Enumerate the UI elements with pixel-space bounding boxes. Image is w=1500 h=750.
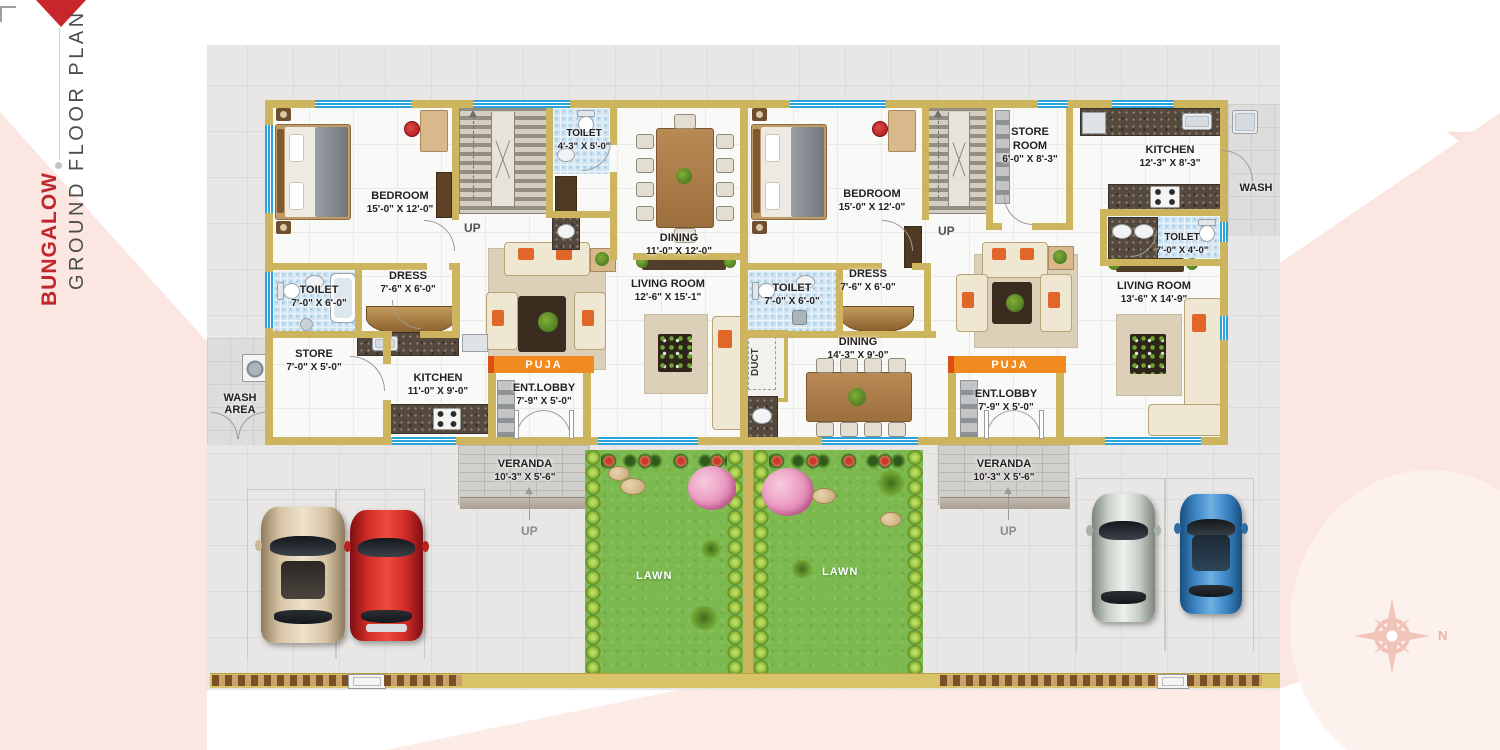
room-label-toilet-attached-a: TOILET 4'-3" X 5'-0": [545, 128, 623, 152]
stove: [1150, 186, 1180, 208]
room-dims: 7'-0" X 5'-0": [268, 362, 360, 375]
chair: [636, 134, 654, 149]
grass-tuft: [790, 560, 814, 578]
sofa-cushion: [992, 248, 1006, 260]
room-name: LIVING ROOM: [606, 278, 730, 292]
page-subtitle: GROUND FLOOR PLAN: [66, 34, 89, 290]
room-name: ENT.LOBBY: [492, 382, 596, 396]
puja-label: PUJA: [991, 359, 1028, 371]
car-rear-glass: [1101, 591, 1145, 604]
nightstand: [276, 108, 291, 121]
desk-chair: [404, 121, 420, 137]
room-name: BEDROOM: [330, 190, 470, 204]
room-dims: 15'-0" X 12'-0": [330, 204, 470, 217]
chair: [716, 134, 734, 149]
room-dims: 10'-3" X 5'-6": [465, 472, 585, 485]
car-windshield: [1099, 521, 1148, 540]
car-blue: [1180, 494, 1242, 614]
car-mirror: [255, 540, 262, 551]
car-windshield: [358, 538, 415, 558]
window: [1105, 437, 1201, 445]
car-rear-glass: [1189, 585, 1232, 597]
room-dims: 7'-0" X 4'-0": [1132, 245, 1232, 257]
wall: [1100, 209, 1107, 266]
wash-basin: [1232, 110, 1258, 134]
room-dims: 4'-3" X 5'-0": [545, 141, 623, 153]
bed-headboard: [277, 129, 284, 213]
room-label-bedroom-b: BEDROOM 15'-0" X 12'-0": [802, 188, 942, 214]
study-desk: [420, 110, 448, 152]
grass-tuft: [876, 470, 906, 496]
window: [1220, 316, 1228, 340]
veranda-arrowhead: [525, 487, 533, 494]
study-desk: [888, 110, 916, 152]
room-name: ENT.LOBBY: [954, 388, 1058, 402]
room-label-store-room-b: STORE ROOM 6'-0" X 8'-3": [985, 126, 1075, 166]
room-dims: 7'-0" X 6'-0": [278, 298, 360, 311]
chair: [864, 422, 882, 437]
wall: [546, 211, 617, 218]
wall: [740, 100, 748, 445]
cabinet: [555, 176, 577, 214]
room-name: VERANDA: [465, 458, 585, 472]
wash-basin: [752, 408, 772, 424]
wall: [265, 263, 427, 270]
veranda-label-a: VERANDA 10'-3" X 5'-6": [465, 458, 585, 484]
room-name: TOILET: [278, 284, 360, 298]
plant: [538, 312, 558, 332]
chair: [674, 114, 696, 129]
room-name: TOILET: [1132, 232, 1232, 245]
room-dims: 6'-0" X 8'-3": [985, 154, 1075, 167]
room-name: DINING: [796, 336, 920, 350]
shrub-border: [907, 450, 923, 674]
room-name: DRESS: [820, 268, 916, 282]
room-dims: 13'-6" X 14'-9": [1092, 294, 1216, 307]
swoosh-top-right-cut: [1292, 0, 1500, 132]
sectional-sofa: [1148, 404, 1222, 436]
room-label-kitchen-b: KITCHEN 12'-3" X 8'-3": [1108, 144, 1232, 170]
veranda-up-label-b: UP: [1000, 524, 1017, 538]
sofa-cushion: [1020, 248, 1034, 260]
room-label-dining-a: DINING 11'-0" X 12'-0": [618, 232, 740, 258]
kitchen-appliance: [462, 334, 488, 352]
door-leaf: [569, 410, 574, 439]
nightstand: [752, 221, 767, 234]
compass-rose-icon: [1352, 596, 1432, 676]
floor-plan-page: BUNGALOW GROUND FLOOR PLAN: [0, 0, 1500, 750]
veranda-up-label-a: UP: [521, 524, 538, 538]
room-label-kitchen-a: KITCHEN 11'-0" X 9'-0": [376, 372, 500, 398]
chair: [716, 182, 734, 197]
car-windshield: [270, 536, 336, 556]
room-dims: 11'-0" X 12'-0": [618, 246, 740, 259]
room-name: TOILET: [545, 128, 623, 141]
shower-drain: [300, 318, 313, 331]
room-dims: 14'-3" X 9'-0": [796, 350, 920, 363]
room-label-dress-b: DRESS 7'-6" X 6'-0": [820, 268, 916, 294]
desk-chair: [872, 121, 888, 137]
plant: [595, 252, 609, 266]
gate: [1157, 674, 1189, 689]
room-name: LIVING ROOM: [1092, 280, 1216, 294]
chair: [816, 422, 834, 437]
door-leaf: [514, 410, 519, 439]
stair-arrow: [473, 116, 474, 198]
rock: [620, 478, 646, 495]
fence: [384, 675, 462, 686]
window: [1112, 100, 1174, 108]
wall: [924, 263, 931, 338]
puja-label: PUJA: [525, 359, 562, 371]
sofa-cushion: [962, 292, 974, 308]
room-label-dining-b: DINING 14'-3" X 9'-0": [796, 336, 920, 362]
gate: [348, 674, 386, 689]
rock: [812, 488, 836, 504]
car-rear-glass: [361, 610, 412, 623]
wash-area-label: WASH AREA: [205, 392, 275, 416]
plant: [1053, 250, 1067, 264]
rock: [880, 512, 902, 527]
stove: [433, 408, 461, 430]
wash-label: WASH: [1228, 182, 1284, 194]
room-dims: 7'-6" X 6'-0": [360, 284, 456, 297]
wash-basin: [557, 224, 575, 239]
chair: [888, 422, 906, 437]
shower-tray: [792, 310, 807, 325]
sofa-cushion: [582, 310, 594, 326]
window: [822, 437, 918, 445]
room-dims: 11'-0" X 9'-0": [376, 386, 500, 399]
window: [265, 272, 273, 328]
grass-tuft: [700, 540, 722, 558]
lawn-label-a: LAWN: [636, 570, 672, 582]
window: [315, 100, 412, 108]
duct-label: DUCT: [750, 338, 772, 386]
puja-shelf: PUJA: [488, 356, 594, 373]
corner-mark: [0, 6, 16, 22]
wall: [383, 338, 391, 364]
wall: [420, 331, 460, 338]
car-mirror: [1174, 523, 1181, 534]
car-mirror: [1154, 525, 1161, 536]
lawn-label-b: LAWN: [822, 566, 858, 578]
wall: [1032, 223, 1073, 230]
swoosh-bottom-left: [0, 112, 207, 750]
stair-arrowhead: [469, 110, 477, 117]
car-rear-glass: [274, 610, 333, 624]
room-name: KITCHEN: [376, 372, 500, 386]
car-beige: [261, 507, 345, 643]
puja-shelf: PUJA: [948, 356, 1066, 373]
car-sunroof: [281, 561, 325, 599]
room-label-lobby-b: ENT.LOBBY 7'-9" X 5'-0": [954, 388, 1058, 414]
room-dims: 7'-9" X 5'-0": [954, 402, 1058, 415]
window: [790, 100, 886, 108]
wall: [546, 100, 553, 218]
room-dims: 7'-0" X 6'-0": [750, 296, 834, 309]
veranda-step: [940, 497, 1070, 509]
wall: [986, 223, 1002, 230]
car-red: [350, 510, 423, 641]
compass-north-label: N: [1438, 628, 1447, 643]
sofa-cushion: [518, 248, 534, 260]
grass-tuft: [688, 606, 720, 630]
bed-pillow: [289, 134, 304, 162]
table-plant: [676, 168, 692, 184]
room-name: STORE: [268, 348, 360, 362]
room-label-living-a: LIVING ROOM 12'-6" X 15'-1": [606, 278, 730, 304]
plant: [1006, 294, 1024, 312]
sofa-cushion: [1048, 292, 1060, 308]
car-roof: [1192, 535, 1229, 571]
nightstand: [276, 221, 291, 234]
room-name: BEDROOM: [802, 188, 942, 202]
flowering-tree: [762, 468, 814, 516]
window: [1038, 100, 1068, 108]
shrub-border: [585, 450, 601, 674]
room-dims: 7'-9" X 5'-0": [492, 396, 596, 409]
chair: [636, 182, 654, 197]
room-label-bedroom-a: BEDROOM 15'-0" X 12'-0": [330, 190, 470, 216]
window: [392, 437, 456, 445]
room-dims: 15'-0" X 12'-0": [802, 202, 942, 215]
stair-landing: [948, 112, 970, 206]
sofa-cushion: [492, 310, 504, 326]
car-silver: [1092, 494, 1155, 622]
room-name: STORE ROOM: [985, 126, 1075, 154]
wardrobe: [840, 306, 914, 332]
door-leaf: [1039, 410, 1044, 439]
room-dims: 12'-6" X 15'-1": [606, 292, 730, 305]
room-name: KITCHEN: [1108, 144, 1232, 158]
bed-headboard: [753, 129, 760, 213]
room-dims: 7'-6" X 6'-0": [820, 282, 916, 295]
bed-pillow: [289, 182, 304, 210]
window: [598, 437, 698, 445]
bed-pillow: [765, 134, 780, 162]
fence: [212, 675, 348, 686]
room-name: DRESS: [360, 270, 456, 284]
sofa-cushion: [1192, 314, 1206, 332]
brand-divider-line: [59, 28, 60, 160]
veranda-arrow: [529, 492, 530, 520]
room-label-living-b: LIVING ROOM 13'-6" X 14'-9": [1092, 280, 1216, 306]
veranda-label-b: VERANDA 10'-3" X 5'-6": [944, 458, 1064, 484]
stair-arrow: [938, 116, 939, 198]
rug-center: [1130, 334, 1166, 374]
page-title: BUNGALOW: [38, 164, 62, 306]
stair-landing: [491, 112, 515, 206]
veranda-arrow: [1008, 492, 1009, 520]
door-leaf: [984, 410, 989, 439]
room-name: DINING: [618, 232, 740, 246]
stair-arrowhead: [934, 110, 942, 117]
table-plant: [848, 388, 866, 406]
window: [265, 125, 273, 213]
veranda-step: [460, 497, 590, 509]
wash-basin: [1112, 224, 1132, 239]
rug-center: [658, 334, 692, 372]
wall: [1100, 259, 1220, 266]
chair: [716, 158, 734, 173]
car-mirror: [1241, 523, 1248, 534]
wall: [383, 400, 391, 445]
room-label-lobby-a: ENT.LOBBY 7'-9" X 5'-0": [492, 382, 596, 408]
room-dims: 12'-3" X 8'-3": [1108, 158, 1232, 171]
fence: [1187, 675, 1262, 686]
kitchen-appliance: [1082, 112, 1106, 134]
chair: [636, 158, 654, 173]
room-dims: 10'-3" X 5'-6": [944, 472, 1064, 485]
room-name: VERANDA: [944, 458, 1064, 472]
veranda-arrowhead: [1004, 487, 1012, 494]
room-label-toilet-a: TOILET 7'-0" X 6'-0": [278, 284, 360, 310]
window: [473, 100, 570, 108]
kitchen-sink: [1182, 113, 1212, 130]
flowering-tree: [688, 466, 736, 510]
room-label-dress-a: DRESS 7'-6" X 6'-0": [360, 270, 456, 296]
fence: [940, 675, 1157, 686]
chair: [636, 206, 654, 221]
bed-pillow: [765, 182, 780, 210]
stairs-up-label-a: UP: [464, 221, 481, 235]
lawn-divider-wall: [743, 450, 753, 674]
car-mirror: [344, 541, 351, 552]
room-label-store-a: STORE 7'-0" X 5'-0": [268, 348, 360, 374]
room-label-toilet-common-b: TOILET 7'-0" X 4'-0": [1132, 232, 1232, 256]
chair: [840, 422, 858, 437]
wall: [265, 331, 392, 338]
stairs-up-label-b: UP: [938, 224, 955, 238]
car-trunk-trim: [366, 624, 407, 632]
chair: [716, 206, 734, 221]
nightstand: [752, 108, 767, 121]
wall: [1100, 209, 1220, 216]
car-mirror: [1086, 525, 1093, 536]
swoosh-bottom-band: [385, 686, 1280, 750]
sofa-cushion: [718, 330, 732, 348]
